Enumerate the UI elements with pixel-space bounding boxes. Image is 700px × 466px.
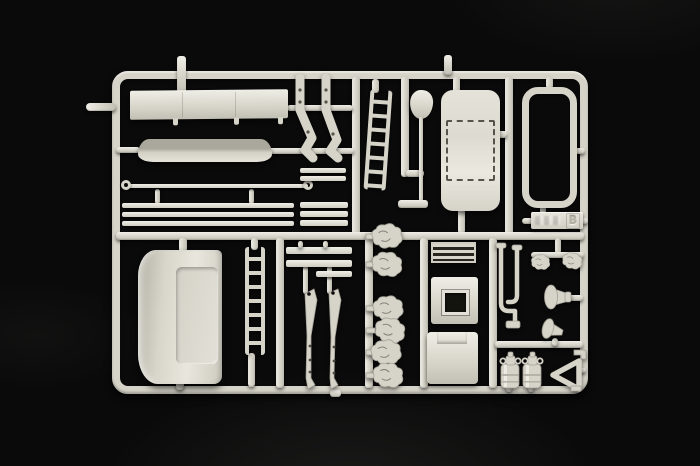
wiper-arm bbox=[329, 289, 341, 389]
warning-triangle bbox=[553, 361, 581, 391]
fire-extinguisher bbox=[500, 352, 520, 388]
horn-bracket bbox=[545, 285, 572, 309]
wiper-arm bbox=[305, 289, 317, 389]
air-horn bbox=[561, 251, 583, 270]
sprue-photo: B bbox=[0, 0, 700, 466]
air-horn bbox=[531, 255, 550, 270]
bent-pipe-pair bbox=[496, 243, 522, 328]
air-horn-pair bbox=[531, 251, 583, 270]
small-cast-part bbox=[371, 222, 403, 249]
corner-hook bbox=[574, 350, 586, 359]
small-cast-part bbox=[371, 251, 403, 277]
mirror-arm bbox=[298, 78, 313, 158]
small-cast-part-column bbox=[366, 222, 407, 388]
fire-extinguisher bbox=[522, 352, 542, 388]
small-cast-part bbox=[372, 362, 403, 388]
molded-parts-overlay bbox=[0, 0, 700, 466]
horn-bracket bbox=[540, 317, 565, 341]
small-cast-part bbox=[372, 295, 403, 321]
mirror-arm bbox=[324, 78, 338, 158]
